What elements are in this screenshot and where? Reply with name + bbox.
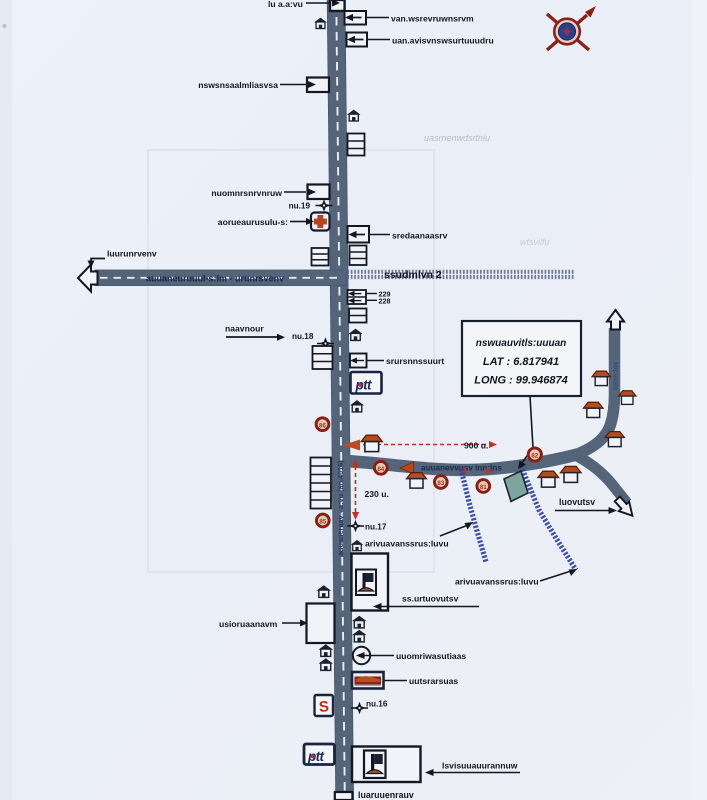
svg-text:86: 86	[319, 422, 326, 429]
svg-text:aorueaurusulu-s:: aorueaurusulu-s:	[218, 217, 288, 227]
svg-text:LONG : 99.946874: LONG : 99.946874	[474, 375, 568, 387]
svg-text:nu.18: nu.18	[292, 332, 314, 341]
svg-text:lu a.a:vu: lu a.a:vu	[268, 0, 303, 9]
svg-text:luinn:lns: luinn:lns	[613, 361, 620, 390]
svg-text:luovutsv: luovutsv	[559, 497, 595, 507]
svg-text:uutsrarsuas: uutsrarsuas	[409, 676, 458, 686]
svg-text:nu.16: nu.16	[366, 700, 388, 709]
svg-text:ptt: ptt	[355, 378, 373, 393]
svg-text:van.wsrevruwnsrvm: van.wsrevruwnsrvm	[391, 14, 474, 24]
svg-text:84: 84	[377, 466, 384, 473]
svg-text:83: 83	[437, 480, 444, 487]
svg-text:naavnour: naavnour	[225, 324, 264, 334]
svg-text:ss.urtuovutsv: ss.urtuovutsv	[402, 594, 459, 604]
svg-text:900 u.: 900 u.	[464, 441, 488, 451]
svg-text:ptt: ptt	[307, 749, 325, 764]
svg-text:ssudmlvn 2: ssudmlvn 2	[384, 269, 442, 281]
svg-text:luaruuenrauv: luaruuenrauv	[358, 790, 414, 800]
svg-text:wtsvilfu: wtsvilfu	[520, 237, 550, 247]
svg-text:sredaanaasrv: sredaanaasrv	[392, 231, 448, 241]
svg-text:arivuavanssrus:luvu: arivuavanssrus:luvu	[455, 577, 539, 587]
svg-text:81: 81	[480, 484, 487, 491]
svg-text:nu.17: nu.17	[365, 523, 387, 532]
svg-text:uasrnenwdsrtniu: uasrnenwdsrtniu	[424, 133, 490, 143]
svg-text:nswsnsaalmliasvsa: nswsnsaalmliasvsa	[198, 80, 278, 90]
svg-text:228: 228	[379, 297, 391, 306]
svg-text:nswuauvitls:uuuan: nswuauvitls:uuuan	[476, 338, 567, 349]
svg-text:82: 82	[531, 453, 538, 460]
svg-text:luurunrvenv: luurunrvenv	[107, 249, 157, 259]
svg-text:auuaneraav - a:vu (an.4016): auuaneraav - a:vu (an.4016)	[336, 460, 345, 556]
svg-text:LAT : 6.817941: LAT : 6.817941	[483, 356, 559, 368]
svg-text:nu.19: nu.19	[289, 202, 311, 211]
svg-text:lsvisuuauurannuw: lsvisuuauurannuw	[442, 761, 518, 771]
svg-text:uuomriwasutiaas: uuomriwasutiaas	[396, 651, 466, 661]
svg-text:arivuavanssrus:luvu: arivuavanssrus:luvu	[365, 539, 449, 549]
svg-text:nuomnrsnrvnruw: nuomnrsnrvnruw	[211, 188, 282, 198]
svg-text:usioruaanavm: usioruaanavm	[219, 619, 278, 629]
svg-text:srursnnssuurt: srursnnssuurt	[386, 356, 444, 366]
svg-text:85: 85	[319, 519, 326, 526]
svg-text:S: S	[318, 698, 329, 716]
svg-text:auuaneuruuul-s:lm - urunrsvenv: auuaneuruuul-s:lm - urunrsvenv	[146, 274, 284, 284]
svg-text:uan.avisvnswsurtuuudru: uan.avisvnswsurtuuudru	[392, 36, 494, 46]
svg-text:230 u.: 230 u.	[365, 489, 389, 499]
